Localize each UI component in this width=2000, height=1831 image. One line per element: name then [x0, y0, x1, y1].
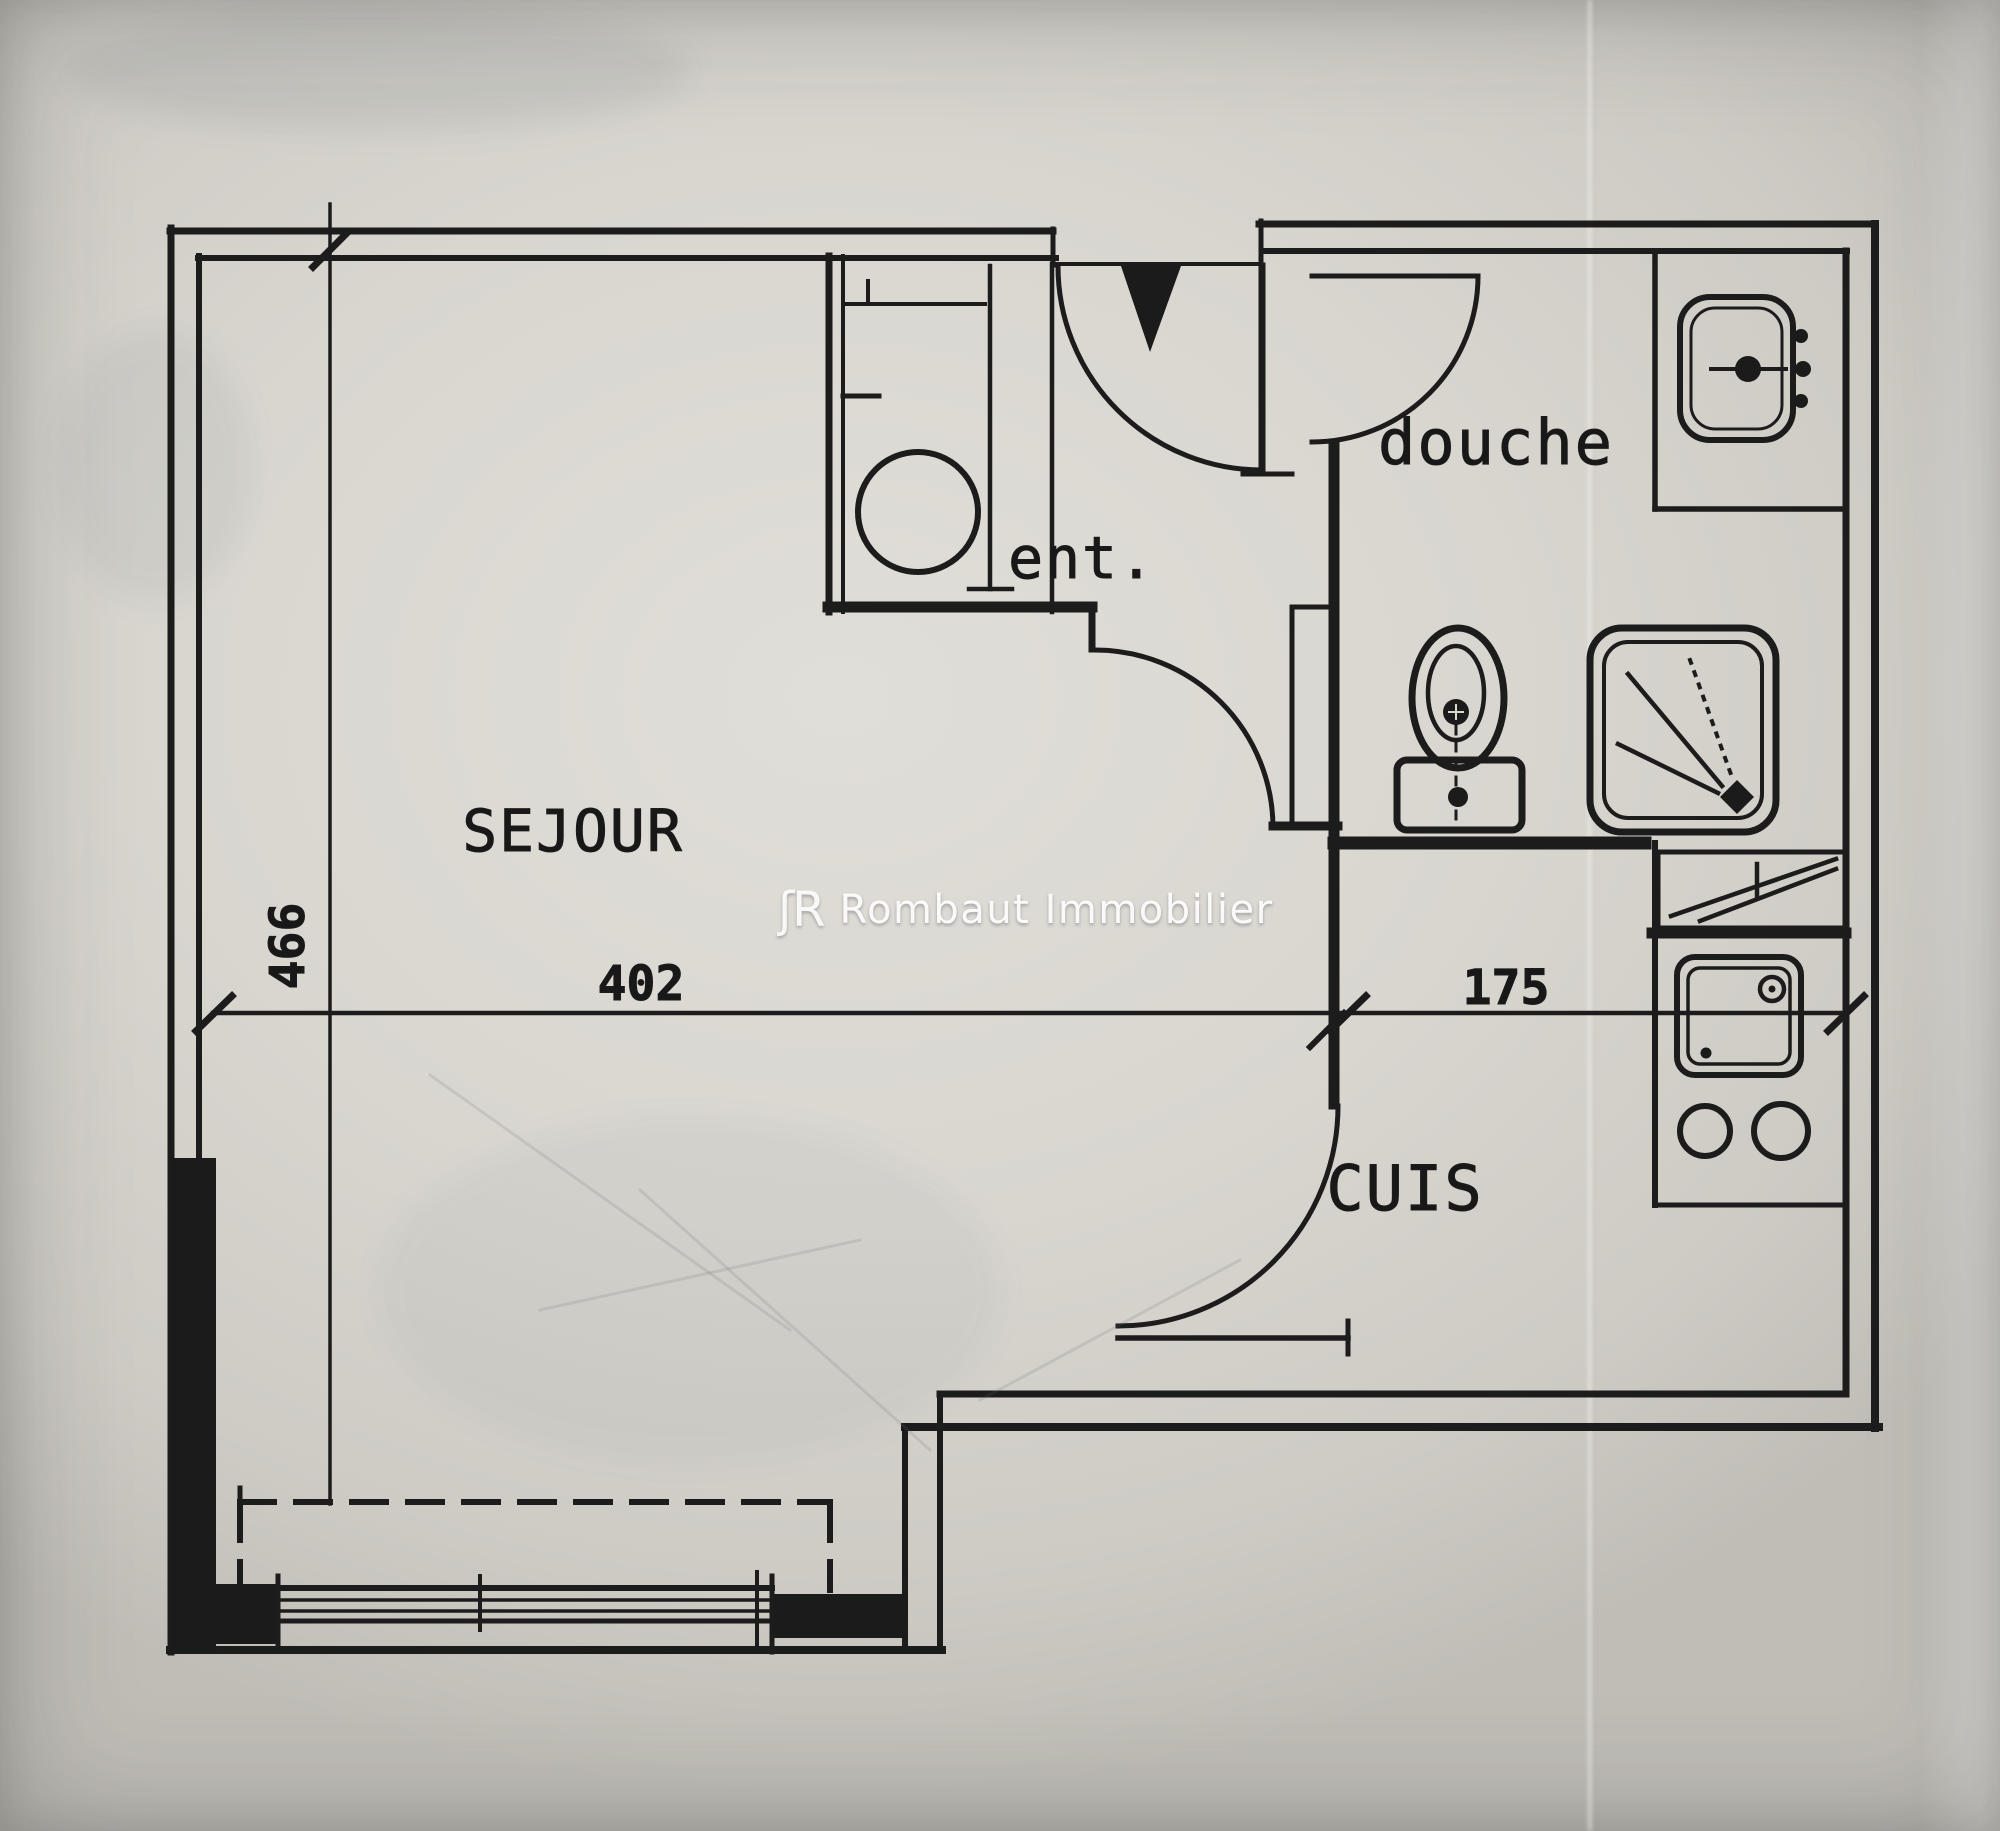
appliance-box-icon: [1658, 852, 1845, 928]
load-bearing-wall: [171, 1158, 907, 1652]
dimension-cuisine-width: 175: [1463, 960, 1550, 1016]
dimension-sejour-depth: 466: [260, 903, 316, 990]
shower-tray-icon: [1590, 628, 1776, 832]
water-heater-icon: [858, 452, 978, 572]
agency-logo-icon: ʃR: [778, 882, 823, 938]
floor-plan-photo: SEJOUR ent. douche CUIS 402 175 466 ʃR R…: [0, 0, 2000, 1831]
dimension-lines: [196, 204, 1864, 1504]
sliding-bay-window-icon: [278, 1572, 772, 1652]
entry-threshold-triangle-icon: [1121, 266, 1181, 352]
balcony-dashed-outline-icon: [240, 1502, 830, 1590]
room-label-sejour: SEJOUR: [462, 797, 684, 865]
kitchen-sink-icon: [1677, 957, 1801, 1075]
room-label-cuisine: CUIS: [1326, 1152, 1483, 1225]
toilet-icon: [1397, 628, 1522, 832]
hall-door-icon: [828, 607, 1338, 828]
washbasin-icon: [1680, 297, 1811, 440]
entry-door-icon: [1058, 266, 1292, 474]
room-label-douche: douche: [1378, 406, 1614, 479]
vanity-counter: [1655, 256, 1846, 509]
kitchen-door-icon: [1118, 1106, 1348, 1354]
room-label-entree: ent.: [1008, 524, 1156, 592]
dimension-sejour-width: 402: [598, 956, 685, 1012]
agency-watermark: ʃR Rombaut Immobilier: [778, 882, 1274, 938]
cooktop-burners-icon: [1680, 1104, 1808, 1158]
agency-name: Rombaut Immobilier: [839, 887, 1273, 933]
